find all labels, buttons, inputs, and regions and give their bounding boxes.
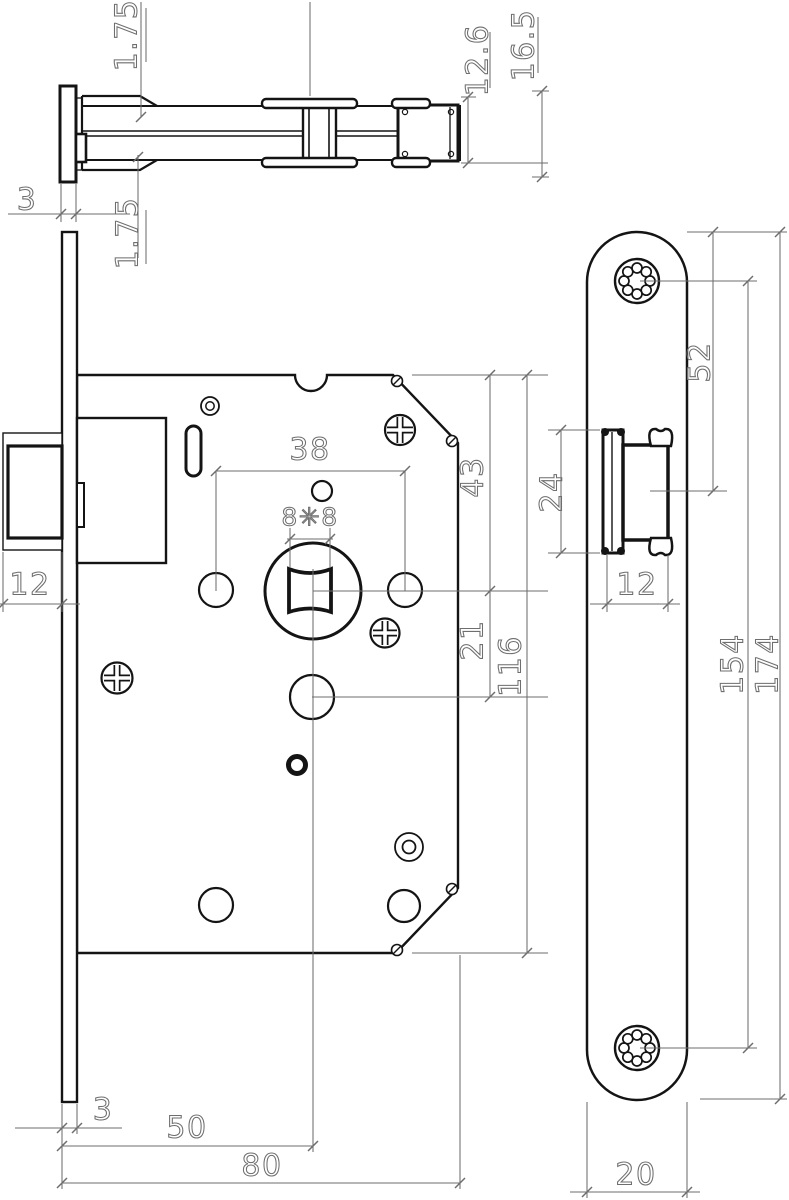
latch-hook-top [649, 429, 672, 446]
latch-housing [77, 418, 166, 563]
latch-cross-band [303, 106, 336, 160]
spring-clip [392, 158, 430, 167]
phillips-screw-top [385, 415, 415, 445]
dim-plate-thickness-top: 3 [17, 183, 38, 218]
dim-plate-width: 20 [615, 1158, 656, 1193]
phillips-screw-left [102, 663, 133, 694]
faceplate-front [62, 232, 77, 1102]
dim-flange-top: 1.75 [110, 0, 145, 71]
drawing-canvas: 1.75 1.75 3 12.6 16.5 [0, 0, 789, 1200]
dim-spindle-to-hole: 21 [456, 619, 491, 660]
latch-hook-bottom [649, 538, 672, 555]
latch-side-bar [603, 430, 623, 553]
bar-knob [617, 547, 625, 555]
dim-hole-spacing: 38 [289, 433, 330, 468]
dim-plate-length: 174 [751, 633, 786, 695]
dim-bolt-height: 12 [9, 568, 50, 603]
dim-backset: 50 [166, 1111, 207, 1146]
dim-top-to-latch: 52 [683, 341, 718, 382]
dim-case-depth: 80 [241, 1149, 282, 1184]
bar-knob [601, 547, 609, 555]
dim-case-height: 116 [494, 635, 529, 697]
latch-bolt-head [8, 446, 62, 538]
bar-knob [601, 428, 609, 436]
view-faceplate-side: 52 24 12 154 174 20 [535, 227, 788, 1198]
spring-clip [262, 158, 357, 167]
view-latch-top: 1.75 1.75 3 12.6 16.5 [8, 0, 549, 269]
dim-latch-cutout: 24 [535, 471, 570, 512]
spring-clip [392, 99, 430, 108]
phillips-screw-mid [371, 619, 400, 648]
dim-latch-width: 12 [616, 568, 657, 603]
dim-latch-total-height: 16.5 [507, 9, 542, 82]
dim-top-to-spindle: 43 [456, 456, 491, 497]
dim-latch-body-height: 12.6 [461, 24, 496, 97]
faceplate-side [587, 232, 687, 1100]
spring-clip [262, 99, 357, 108]
bar-knob [617, 428, 625, 436]
dim-screw-centers: 154 [716, 633, 751, 695]
latch-housing-detail [77, 483, 84, 527]
dim-plate-thickness-front: 3 [93, 1093, 114, 1128]
dim-flange-bottom: 1.75 [111, 197, 146, 270]
view-lock-case-front: 38 8✳8 43 21 116 12 3 50 80 [0, 232, 548, 1189]
mortise-lock-technical-drawing: 1.75 1.75 3 12.6 16.5 [0, 0, 789, 1200]
latch-bolt-side [623, 445, 668, 540]
latch-anchor [76, 134, 86, 162]
dim-spindle-square: 8✳8 [281, 503, 338, 532]
faceplate-cross-section [60, 86, 76, 182]
